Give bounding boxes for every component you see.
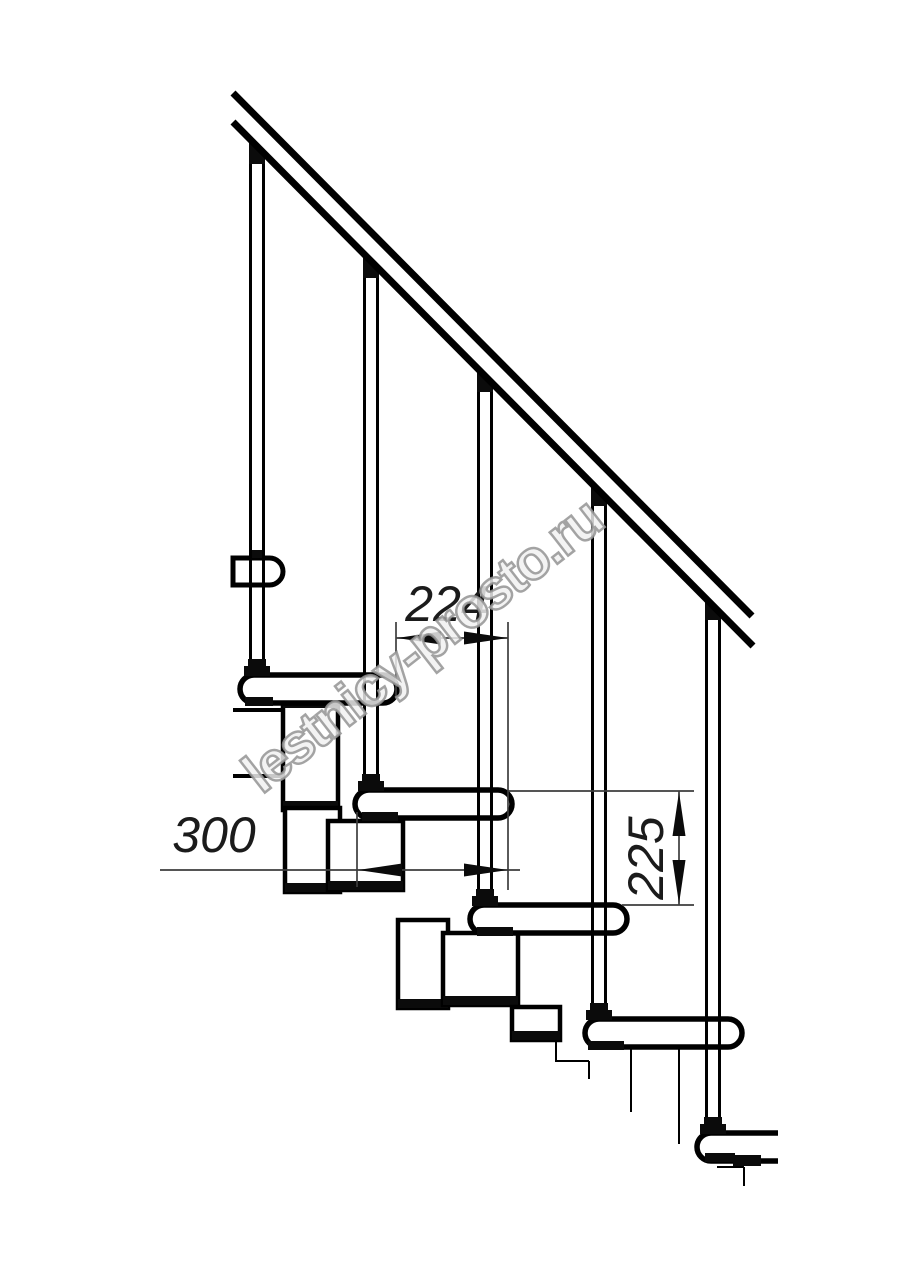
cutoff-lines [556,1040,744,1186]
arrowhead-down [673,860,686,904]
landing-post-mount [233,550,283,585]
tread-5 [697,1133,778,1166]
tread-3 [470,905,627,936]
baluster-4 [586,481,612,1020]
baluster-1 [244,139,270,676]
stringer-module-6 [512,1007,560,1040]
baluster-2 [358,253,384,791]
dim-rise-label: 225 [618,816,674,901]
arrowhead-left [397,632,441,645]
stringer-module-3 [328,821,403,890]
baluster-5 [700,595,726,1134]
arrowhead-up [673,792,686,836]
dim-tread-depth-label: 300 [172,807,256,863]
stringer-module-5 [443,933,518,1005]
dim-run-label: 224 [404,576,488,632]
landing-shelf [233,710,288,776]
stringer-module-1 [283,699,338,810]
tread-2 [355,790,512,821]
stringer-module-4 [398,920,448,1008]
drawing-vector-layer: 224 300 225 [0,0,914,1280]
staircase-drawing: 224 300 225 lestnicy-prosto.ru [0,0,914,1280]
arrowhead-right [464,632,508,645]
arrowhead-right [464,864,508,877]
tread-1 [240,675,397,706]
dimension-rise: 225 [508,791,694,905]
